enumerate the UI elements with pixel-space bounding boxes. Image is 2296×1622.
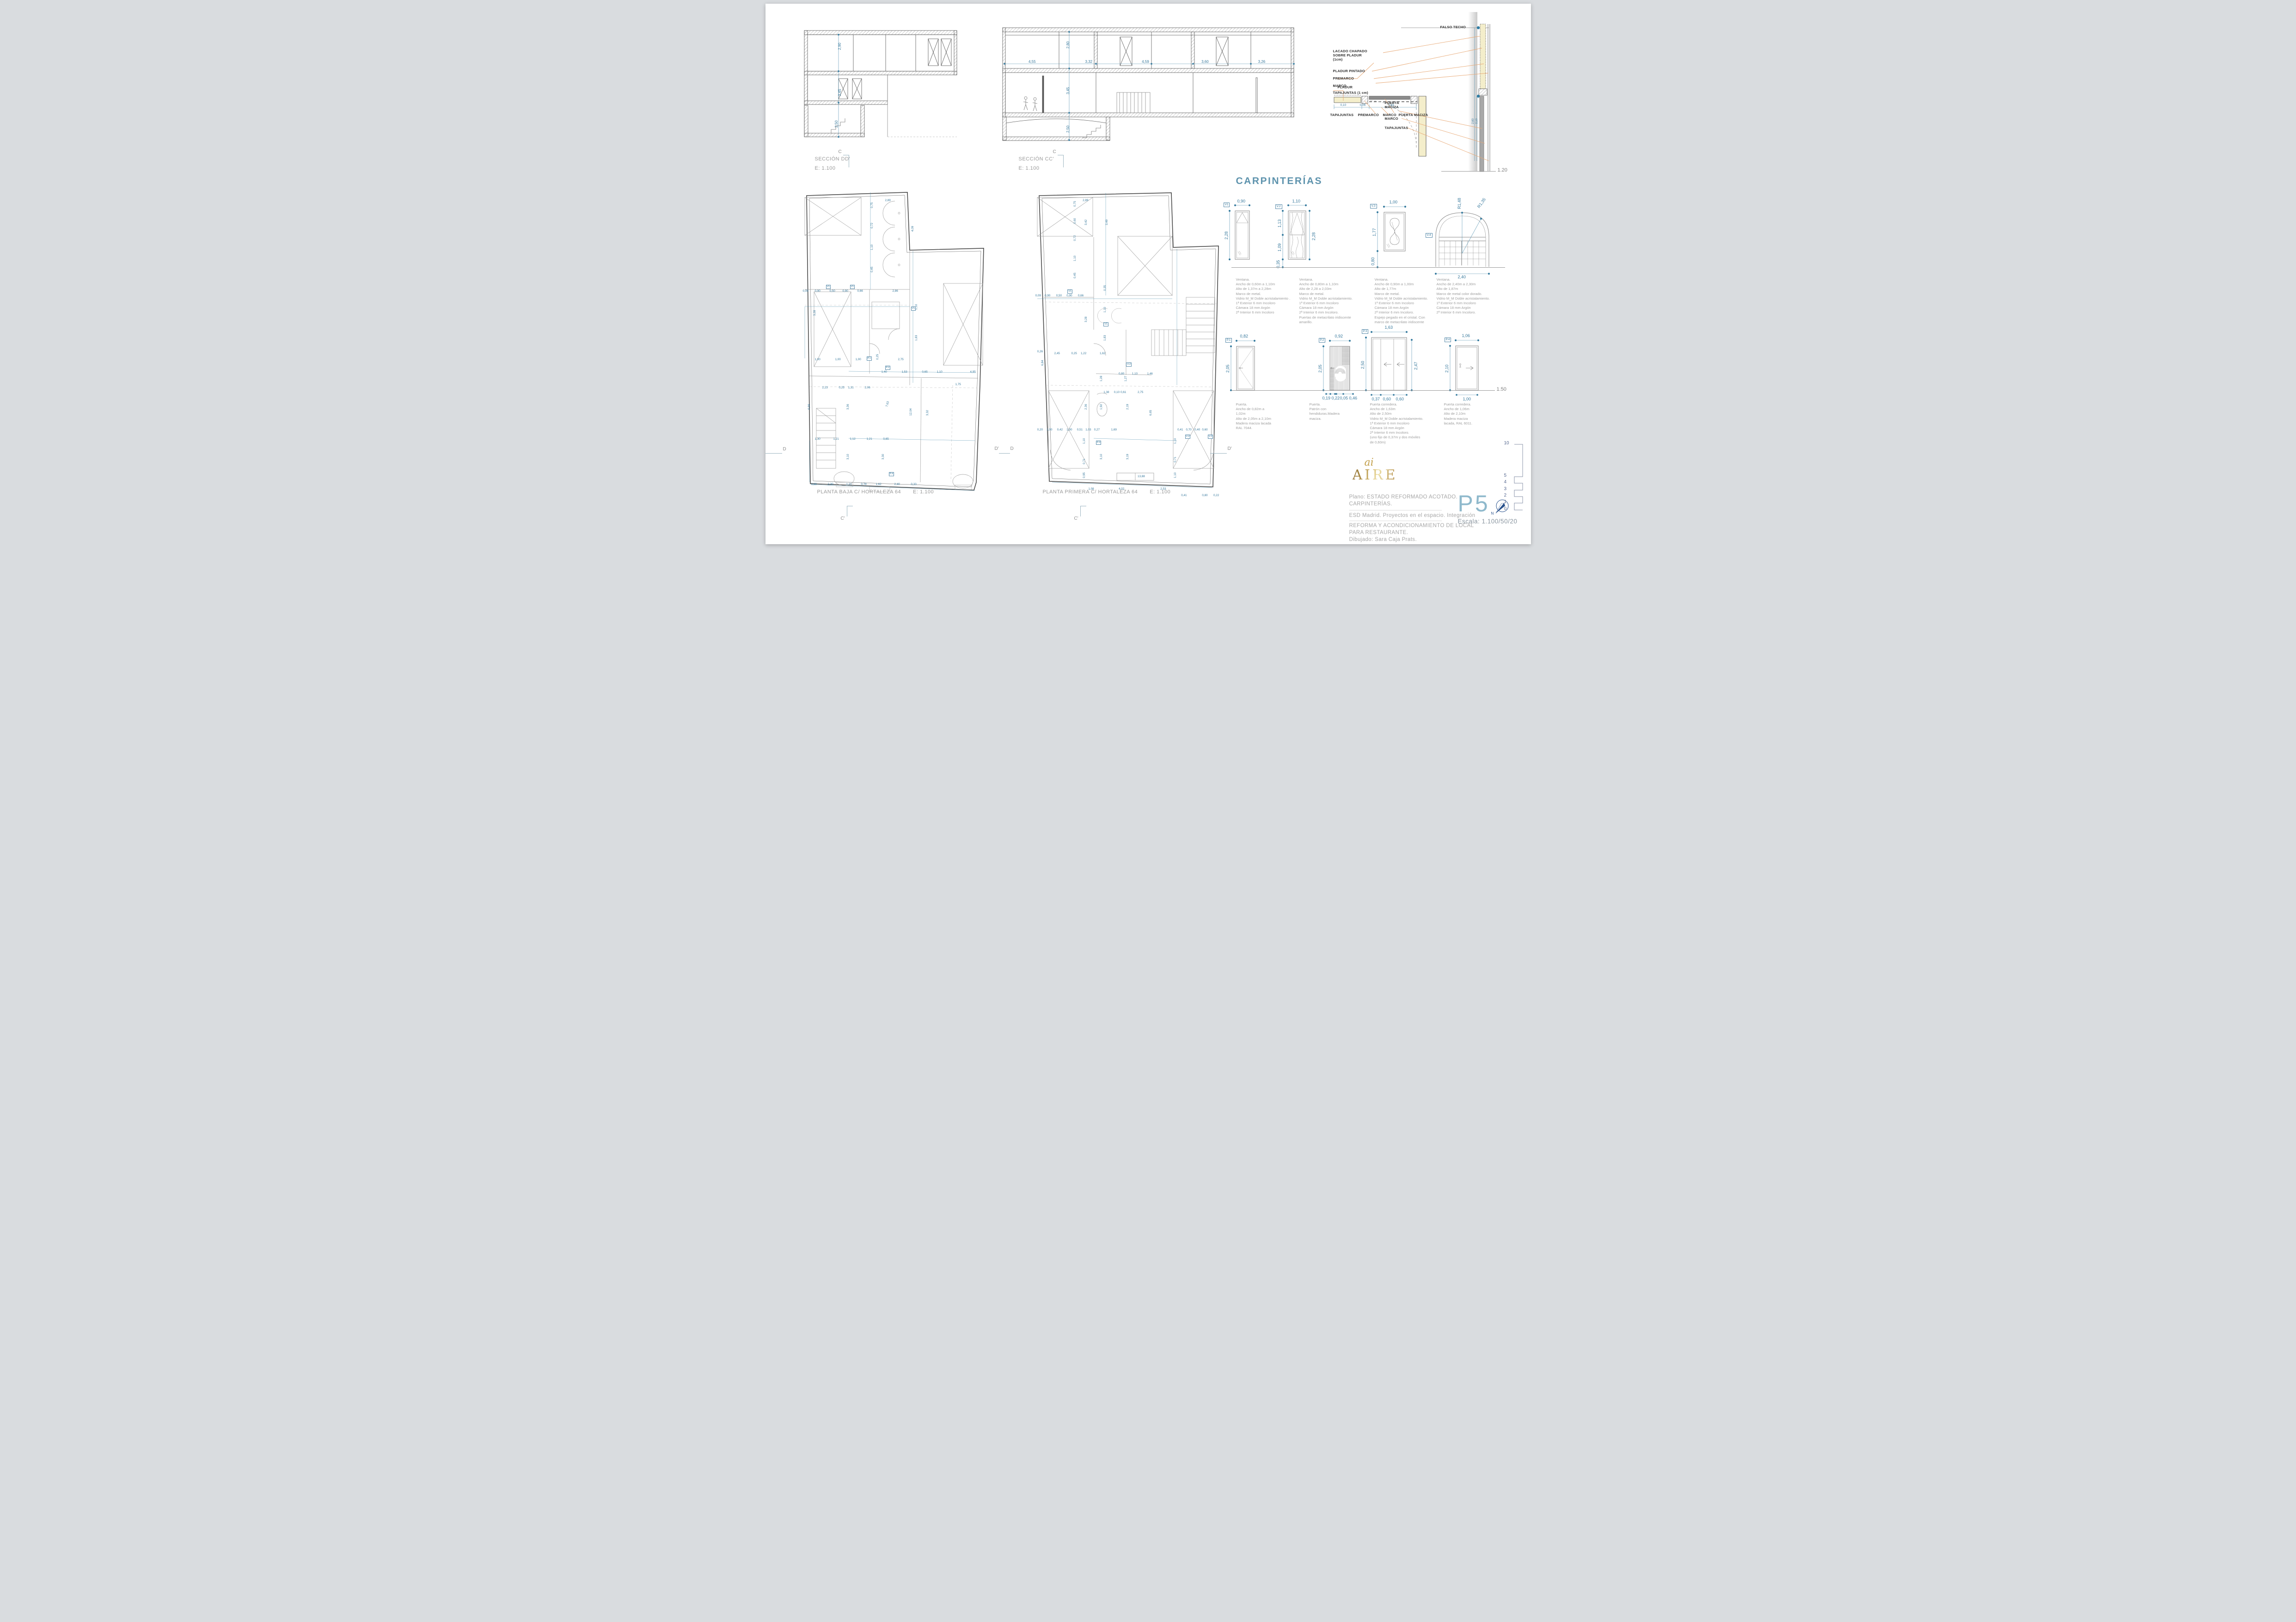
door-p3-desc: Puerta corredera.Ancho de 1,63mAlto de 2… [1370, 402, 1435, 445]
door-p4-b1: 1,00 [1463, 397, 1471, 401]
dimension-label: 1,03 [1085, 428, 1091, 431]
dimension-label: 3,30 [882, 454, 885, 459]
dimension-label: 0,22 [1213, 494, 1219, 497]
window-v3-desc: Ventana.Ancho de 0,90m a 1,00mAlto de 1,… [1375, 277, 1439, 325]
window-v2-tag: V.2 [1275, 204, 1282, 209]
plan-planta-baja: 2,890,750,721,100,454,090,090,900,500,90… [800, 191, 985, 503]
window-v1-height: 2,28 [1224, 231, 1229, 240]
graphic-scale-bar: 10543210 [1500, 441, 1531, 515]
dimension-label: 2,36 [1084, 404, 1088, 409]
window-v4-r1: R1,48 [1457, 198, 1462, 209]
dimension-label: 2,19 [1126, 404, 1129, 409]
dimension-label: 1,83 [1103, 335, 1107, 341]
marker-d-right: D [1010, 446, 1014, 451]
dimension-label: 3,28 [1084, 316, 1088, 322]
door-p4-tag: P.4 [1445, 338, 1451, 342]
detail-puerta-maciza-label: PUERTAMACIZA [1385, 101, 1399, 109]
plan-planta-primera-dims: 2,893,493,420,750,600,721,100,450,090,90… [1034, 191, 1223, 503]
section-dd-dims: 2,903,452,50 [798, 27, 964, 142]
dimension-label: 0,45 [870, 266, 874, 272]
dimension-label: 0,65 [922, 370, 928, 374]
window-v3-width: 1,00 [1390, 200, 1398, 204]
window-v1: V1 0,90 2,28 [1224, 192, 1279, 272]
dimension-label: 3,49 [1105, 220, 1108, 225]
dimension-label: 3,10 [846, 454, 850, 459]
dimension-label: 0,40 [1194, 428, 1200, 431]
dimension-label: 3,26 [1258, 60, 1266, 64]
joinery-detail: FALSO TECHO LACADO CHAPADOSOBRE PLADUR(1… [1329, 8, 1531, 179]
dimension-label: 2,75 [1138, 391, 1143, 394]
marker-cprime-right-line [1080, 506, 1086, 516]
window-v3-sill: 0,80 [1371, 257, 1375, 265]
dimension-label: 1,10 [870, 245, 874, 250]
dimension-label: 1,10 [1174, 438, 1177, 443]
scale-number: 1 [1504, 499, 1507, 504]
window-v3-tag: V.3 [1370, 204, 1377, 209]
dimension-label: 1,83 [915, 335, 918, 341]
dimension-label: 13,88 [1138, 475, 1145, 478]
dimension-label: 1,12 [850, 437, 856, 441]
doors-scale-150: 1.50 [1497, 387, 1506, 392]
door-p3-b3: 0,60 [1396, 397, 1404, 401]
marker-d-left-line [765, 453, 782, 454]
window-v2: V.2 1,10 1,13 1,09 0,35 2,28 [1274, 192, 1335, 272]
dimension-label: 3,19 [1126, 454, 1129, 459]
dimension-label: 1,10 [1132, 372, 1138, 375]
titleblock-escala: Escala: 1.100/50/20 [1458, 518, 1518, 525]
section-cc-scale: E: 1.100 [1019, 166, 1040, 171]
window-v2-hupper: 1,13 [1277, 219, 1282, 227]
door-p3-b1: 0,37 [1372, 397, 1380, 401]
section-cc-label: SECCIÓN CC' [1019, 156, 1054, 162]
door-p4-width: 1,06 [1462, 333, 1470, 338]
dimension-label: 0,66 [857, 289, 863, 293]
dimension-label: 3,36 [846, 404, 850, 409]
dimension-label: 0,90 [843, 289, 848, 293]
dimension-label: 1,22 [1081, 352, 1086, 355]
dimension-label: 0,26 [1037, 350, 1043, 353]
plan-planta-baja-label: PLANTA BAJA C/ HORTALEZA 64E: 1.100 [817, 489, 934, 495]
section-marker-c-left-line [843, 155, 849, 167]
section-dd-scale: E: 1.100 [815, 166, 836, 171]
dimension-label: 1,69 [1111, 428, 1117, 431]
door-p3-tag: P.3 [1362, 329, 1369, 334]
door-p2: P.2 0,92 2,05 0,19 0,22 0,05 0,46 [1313, 327, 1369, 413]
titleblock-divider-1 [1349, 510, 1442, 510]
dimension-label: 1,21 [833, 437, 839, 441]
dimension-label: 3,42 [1084, 220, 1088, 225]
dimension-label: 3,60 [1201, 60, 1209, 64]
dimension-label: 0,70 [1186, 428, 1192, 431]
dimension-label: 6,66 [808, 404, 811, 409]
dimension-label: 2,75 [898, 358, 904, 361]
plan-ref-tag: V1 [826, 285, 831, 289]
dimension-label: 1,10 [1073, 256, 1077, 261]
dimension-label: 7,63 [885, 401, 890, 407]
dimension-label: 1,00 [1066, 428, 1072, 431]
dimension-label: 0,88 [811, 483, 817, 486]
plan-detail-dim-010: 0,10 [1341, 104, 1347, 107]
window-v3-drawing [1370, 192, 1430, 272]
dimension-label: 1,62 [876, 483, 882, 486]
window-v1-desc: Ventana.Ancho de 0,60m a 1,10mAlto de 1,… [1236, 277, 1301, 315]
door-p1-width: 0,82 [1240, 334, 1249, 338]
dimension-label: 0,71 [1174, 457, 1177, 462]
dimension-label: 6,84 [1041, 360, 1044, 366]
dimension-label: 0,10 [1114, 391, 1120, 394]
detail-tapajuntas2-label: TAPAJUNTAS [1385, 126, 1408, 130]
window-v1-tag: V1 [1224, 203, 1230, 207]
window-v3-height: 1,77 [1372, 228, 1377, 236]
door-p3-width: 1,63 [1385, 325, 1393, 330]
dimension-label: 1,38 [1103, 391, 1109, 394]
dimension-label: 0,35 [1103, 285, 1107, 291]
dimension-label: 2,90 [838, 43, 842, 50]
dimension-label: 4,09 [911, 226, 914, 231]
door-p2-tag: P.2 [1319, 338, 1326, 343]
dimension-label: 0,90 [1045, 294, 1050, 297]
dimension-label: 0,25 [839, 386, 845, 389]
detail-ground-line [1441, 171, 1496, 172]
dimension-label: 0,80 [1202, 494, 1207, 497]
door-p3: P.3 1,63 2,50 2,47 0,37 0,60 0,60 [1362, 323, 1427, 415]
plan-detail-pladur: PLADUR [1338, 85, 1353, 89]
dimension-label: 0,80 [1119, 372, 1124, 375]
dimension-label: 4,59 [1142, 60, 1149, 64]
dimension-label: 1,75 [955, 383, 961, 386]
plan-detail-premarco: PREMARCO [1358, 113, 1379, 117]
window-v4-desc: Ventana.Ancho de 2,40m a 2,30mAlto de 1,… [1437, 277, 1501, 315]
titleblock-plano: Plano: ESTADO REFORMADO ACOTADO. CARPINT… [1349, 494, 1458, 508]
dimension-label: 0,90 [815, 289, 820, 293]
detail-lacado-label: LACADO CHAPADOSOBRE PLADUR(1cm) [1333, 49, 1367, 61]
dimension-label: 3,32 [926, 410, 929, 416]
window-v4-tag: V.4 [1426, 233, 1433, 238]
dimension-label: 0,33 [911, 483, 917, 486]
scale-number: 3 [1504, 486, 1507, 492]
carpinterias-title: CARPINTERÍAS [1236, 176, 1323, 187]
dimension-label: 0,50 [830, 289, 835, 293]
plan-detail-dim-006: 0,06 [1360, 104, 1366, 107]
dimension-label: 4,95 [970, 370, 976, 374]
dimension-label: 2,89 [885, 199, 891, 202]
dimension-label: 3,28 [813, 310, 816, 316]
dimension-label: 1,10 [1174, 473, 1177, 478]
dimension-label: 2,86 [893, 289, 898, 293]
door-p2-desc: Puerta.Patrón conhendiduras.Maderamaciza… [1310, 402, 1374, 421]
detail-vdim-260: 2,60 [1472, 118, 1475, 124]
door-p2-height: 2,05 [1318, 364, 1322, 373]
detail-premarco-label: PREMARCO [1333, 76, 1354, 80]
plan-ref-tag: P.3 [1096, 441, 1102, 445]
sheet-number: P5 [1458, 490, 1490, 517]
dimension-label: 1,00 [856, 358, 861, 361]
dimension-label: 2,50 [1066, 126, 1070, 133]
marker-dprime-right-line [1210, 453, 1227, 454]
dimension-label: 0,41 [1177, 428, 1183, 431]
door-p2-b3: 0,05 [1340, 396, 1348, 400]
window-v1-drawing [1224, 192, 1279, 272]
dimension-label: 6,65 [1149, 410, 1152, 416]
door-p1-desc: Puerta.Ancho de 0,82m a1,02mAlto de 2,05… [1236, 402, 1301, 430]
dimension-label: 2,89 [1083, 199, 1088, 202]
door-p1: P.1 0,82 2,05 [1225, 327, 1276, 406]
dimension-label: 1,21 [867, 437, 872, 441]
plan-ref-tag: P.4 [889, 472, 894, 476]
dimension-label: 0,20 [1037, 428, 1043, 431]
plan-ref-tag: V.2 [1185, 435, 1191, 439]
dimension-label: 1,10 [1103, 307, 1107, 313]
dimension-label: 12,04 [909, 408, 912, 416]
scale-number: 0 [1504, 506, 1507, 511]
scale-number: 4 [1504, 479, 1507, 485]
door-p1-tag: P.1 [1225, 338, 1232, 343]
dimension-label: 1,40 [882, 370, 887, 374]
dimension-label: 1,46 [1147, 372, 1153, 375]
dimension-label: 2,23 [822, 386, 828, 389]
window-v2-drawing [1274, 192, 1335, 272]
dimension-label: 1,92 [1100, 404, 1103, 409]
titleblock-project: REFORMA Y ACONDICIONAMIENTO DE LOCAL PAR… [1349, 522, 1474, 536]
dimension-label: 0,27 [1094, 428, 1100, 431]
dimension-label: 1,10 [937, 370, 943, 374]
dimension-label: 0,50 [1056, 294, 1062, 297]
plan-planta-primera: 2,893,493,420,750,600,721,100,450,090,90… [1034, 191, 1223, 503]
door-p2-b1: 0,19 [1322, 396, 1331, 400]
marker-dprime-left: D' [995, 446, 999, 451]
section-dd: 2,903,452,50 [798, 27, 964, 142]
dimension-label: 1,53 [902, 370, 907, 374]
marker-d-mid-line [999, 453, 1010, 454]
dimension-label: 1,27 [1124, 375, 1127, 381]
doors-ground-line [1231, 390, 1495, 391]
dimension-label: 2,06 [865, 386, 870, 389]
window-v2-hlower: 1,09 [1277, 243, 1282, 252]
dimension-label: 0,60 [1073, 218, 1077, 224]
plan-ref-tag: V1 [1067, 289, 1072, 294]
dimension-label: 0,72 [1073, 235, 1077, 241]
plan-planta-baja-dims: 2,890,750,721,100,454,090,090,900,500,90… [800, 191, 985, 503]
window-v2-height: 2,28 [1311, 232, 1316, 240]
scale-number: 10 [1504, 441, 1509, 446]
dimension-label: 0,90 [1066, 294, 1072, 297]
window-v3: V.3 1,00 1,77 0,80 [1370, 192, 1430, 272]
dimension-label: 1,00 [835, 358, 841, 361]
dimension-label: 0,72 [870, 223, 874, 228]
drawing-sheet: 2,903,452,50 SECCIÓN DD' E: 1.100 [765, 4, 1531, 544]
dimension-label: 1,00 [815, 358, 820, 361]
dimension-label: 1,00 [1047, 428, 1052, 431]
windows-ground-line [1231, 267, 1505, 268]
titleblock-divider-2 [1349, 521, 1442, 521]
door-p4-height: 2,10 [1445, 364, 1449, 373]
door-p3-heightl: 2,50 [1360, 361, 1365, 369]
window-v2-desc: Ventana.Ancho de 0,80m a 1,10mAlto de 2,… [1299, 277, 1364, 325]
detail-pladur-pintado-label: PLADUR PINTADO [1333, 69, 1365, 73]
door-p3-heightr: 2,47 [1414, 362, 1418, 370]
dimension-label: 0,51 [1077, 428, 1083, 431]
marker-cprime-right: C' [1074, 516, 1078, 521]
dimension-label: 1,21 [846, 483, 852, 486]
window-v1-width: 0,90 [1237, 199, 1246, 203]
detail-vdim-210: 2,10 [1476, 118, 1478, 124]
dimension-label: 2,80 [1066, 42, 1070, 49]
dimension-label: 1,31 [848, 386, 854, 389]
marker-d-left: D [783, 447, 786, 452]
detail-marco2-label: MARCO [1385, 117, 1398, 121]
door-p3-b2: 0,60 [1383, 397, 1391, 401]
dimension-label: 3,45 [838, 89, 842, 96]
dimension-label: 0,60 [1202, 428, 1207, 431]
north-arrow-n: N [1491, 511, 1494, 516]
scale-number: 5 [1504, 473, 1507, 478]
dimension-label: 1,28 [1100, 375, 1103, 381]
dimension-label: 1,30 [815, 437, 820, 441]
dimension-label: 1,10 [1083, 438, 1086, 443]
scale-number: 2 [1504, 493, 1507, 498]
dimension-label: 2,50 [834, 120, 839, 128]
dimension-label: 0,78 [861, 483, 867, 486]
dimension-label: 0,45 [1073, 273, 1077, 278]
aire-logo: AIRE [1353, 467, 1398, 483]
plan-ref-tag: P.1 [867, 356, 872, 361]
plan-ref-tag: V1 [1103, 322, 1108, 326]
dimension-label: 0,09 [1035, 294, 1041, 297]
dimension-label: 1,10 [915, 304, 918, 309]
dimension-label: 0,65 [883, 437, 889, 441]
titleblock-school: ESD Madrid. Proyectos en el espacio. Int… [1349, 512, 1476, 519]
dimension-label: 0,66 [1078, 294, 1084, 297]
graphic-scale-numbers: 10543210 [1500, 441, 1531, 515]
section-marker-c-mid-line [1058, 155, 1064, 167]
dimension-label: 4,55 [1029, 60, 1036, 64]
door-p2-width: 0,92 [1335, 334, 1343, 338]
marker-dprime-right: D' [1228, 446, 1232, 451]
titleblock-author: Dibujado: Sara Caja Prats. [1349, 536, 1417, 543]
door-p4-desc: Puerta corredera.Ancho de 1,06mAlto de 2… [1444, 402, 1509, 426]
dimension-label: 0,75 [870, 203, 874, 208]
dimension-label: 0,61 [1120, 391, 1126, 394]
window-v2-width: 1,10 [1292, 199, 1301, 203]
marker-cprime-left-line [847, 506, 853, 516]
dimension-label: 0,25 [876, 354, 879, 359]
door-p2-b2: 0,22 [1332, 396, 1340, 400]
dimension-label: 2,30 [828, 483, 833, 486]
detail-falso-techo-label: FALSO TECHO [1440, 25, 1466, 29]
section-marker-c-left: C [839, 149, 842, 154]
section-marker-c-mid: C [1053, 149, 1056, 154]
dimension-label: 0,71 [1083, 458, 1086, 464]
dimension-label: 0,41 [1181, 494, 1187, 497]
dimension-label: 0,42 [1057, 428, 1063, 431]
dimension-label: 3,10 [1100, 454, 1103, 459]
dimension-label: 0,09 [803, 289, 808, 293]
plan-ref-tag: V.2 [1208, 435, 1213, 439]
section-cc: 2,803,452,504,553,324,593,603,26 [999, 22, 1297, 142]
plan-ref-tag: V1 [850, 285, 855, 289]
door-p1-height: 2,05 [1225, 364, 1230, 373]
detail-scale-120: 1.20 [1498, 167, 1507, 173]
dimension-label: 2,40 [894, 483, 900, 486]
detail-tapajuntas-label: TAPAJUNTAS (1 cm) [1333, 91, 1368, 95]
door-p4: P.4 1,06 2,10 1,00 [1443, 327, 1498, 413]
marker-cprime-left: C' [841, 516, 845, 521]
dimension-label: 0,25 [1071, 352, 1077, 355]
section-cc-dims: 2,803,452,504,553,324,593,603,26 [999, 22, 1297, 142]
plan-ref-tag: V.2 [1126, 362, 1132, 367]
dimension-label: 0,75 [1073, 201, 1077, 206]
plan-detail-tapajuntas: TAPAJUNTAS [1330, 113, 1354, 117]
dimension-label: 0,95 [1083, 473, 1086, 478]
door-p2-b4: 0,46 [1349, 396, 1358, 400]
dimension-label: 3,45 [1066, 87, 1070, 94]
plan-detail-puerta-maciza: PUERTA MACIZA [1399, 113, 1428, 117]
plan-planta-primera-label: PLANTA PRIMERA C/ HORTALEZA 64E: 1.100 [1043, 489, 1171, 495]
dimension-label: 3,32 [1085, 60, 1093, 64]
door-p1-drawing [1225, 327, 1276, 406]
dimension-label: 1,62 [1100, 352, 1105, 355]
plan-ref-tag: P.2 [885, 366, 891, 370]
dimension-label: 2,45 [1054, 352, 1060, 355]
